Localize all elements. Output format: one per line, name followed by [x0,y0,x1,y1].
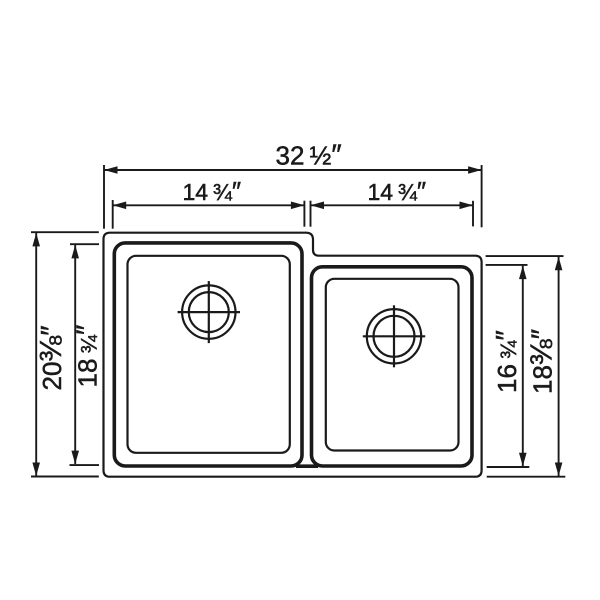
svg-text:14 ¾″: 14 ¾″ [368,176,427,206]
svg-text:20⅜″: 20⅜″ [33,325,68,390]
svg-text:18⅜″: 18⅜″ [524,329,559,394]
svg-text:14 ¾″: 14 ¾″ [183,176,242,206]
svg-text:18 ¾″: 18 ¾″ [72,325,104,388]
svg-text:16 ¾″: 16 ¾″ [491,330,523,393]
svg-text:32 ½″: 32 ½″ [276,140,342,172]
